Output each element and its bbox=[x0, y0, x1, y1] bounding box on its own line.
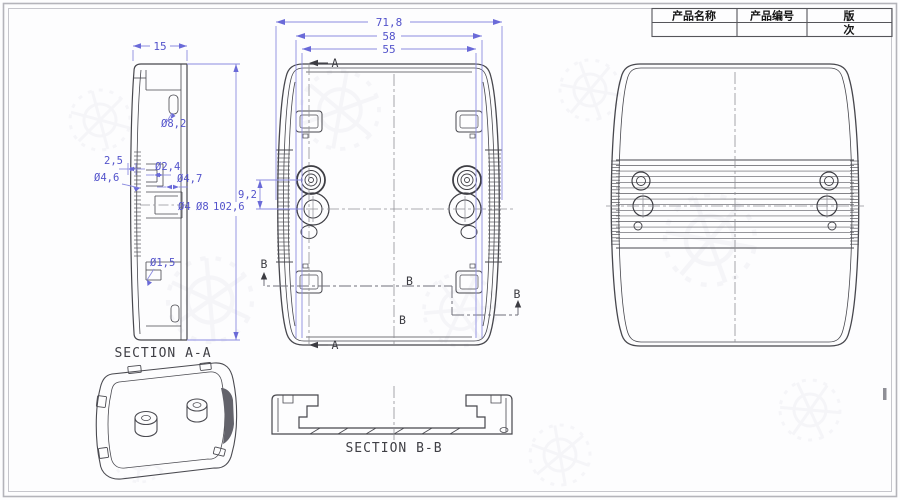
fold-mark bbox=[883, 388, 887, 400]
rear-view bbox=[606, 64, 864, 346]
dim-boss-mid: Ø4,7 bbox=[177, 173, 202, 185]
slot-8-2 bbox=[169, 95, 178, 114]
drawing-sheet: 产品名称 产品编号 版 次 bbox=[0, 0, 900, 500]
dim-hole-d4: Ø4 bbox=[178, 201, 191, 213]
title-block: 产品名称 产品编号 版 次 bbox=[652, 9, 892, 37]
section-b-marker-mid-lower: B bbox=[399, 313, 406, 327]
dim-hole-small: Ø2,4 bbox=[155, 161, 180, 173]
dim-thickness: 15 bbox=[153, 40, 166, 53]
dim-width-58: 58 bbox=[382, 30, 395, 43]
dim-boss-outer: Ø4,6 bbox=[94, 172, 119, 184]
isometric-view bbox=[96, 362, 236, 479]
product-name-label: 产品名称 bbox=[672, 9, 716, 23]
dim-boss-d8: Ø8 bbox=[196, 201, 209, 213]
dim-step: 2,5 bbox=[104, 155, 123, 167]
dim-hole-tiny: Ø1,5 bbox=[150, 257, 175, 269]
screw-boss bbox=[632, 172, 650, 190]
section-b-marker-mid-upper: B bbox=[406, 274, 413, 288]
side-section-view: 15 Ø8,2 2,5 Ø4,6 Ø2,4 Ø4,7 Ø4 Ø8 102,6 Ø… bbox=[94, 40, 245, 361]
dim-width-55: 55 bbox=[382, 43, 395, 56]
product-code-label: 产品编号 bbox=[750, 9, 794, 23]
rib-ticks-left bbox=[611, 161, 620, 244]
section-aa-label: SECTION A-A bbox=[114, 346, 211, 361]
revision-label-line2: 次 bbox=[844, 23, 855, 37]
rib-band bbox=[134, 152, 141, 256]
revision-label-line1: 版 bbox=[844, 9, 855, 23]
dim-height: 102,6 bbox=[213, 201, 245, 213]
section-b-marker-right: B bbox=[514, 287, 521, 301]
dim-boss-spacing: 9,2 bbox=[238, 189, 257, 201]
screw-boss bbox=[820, 172, 838, 190]
section-bb-view: SECTION B-B bbox=[272, 386, 512, 456]
dim-overall-width: 71,8 bbox=[376, 16, 403, 29]
section-a-marker-bottom: A bbox=[332, 338, 339, 352]
section-a-marker-top: A bbox=[332, 56, 339, 70]
rib-ticks-right bbox=[850, 161, 859, 244]
technical-drawing-canvas: 产品名称 产品编号 版 次 bbox=[0, 0, 900, 500]
section-bb-label: SECTION B-B bbox=[345, 441, 442, 456]
dim-slot: Ø8,2 bbox=[161, 118, 186, 130]
section-b-marker-left: B bbox=[261, 257, 268, 271]
section-b-cut-line bbox=[264, 274, 276, 286]
